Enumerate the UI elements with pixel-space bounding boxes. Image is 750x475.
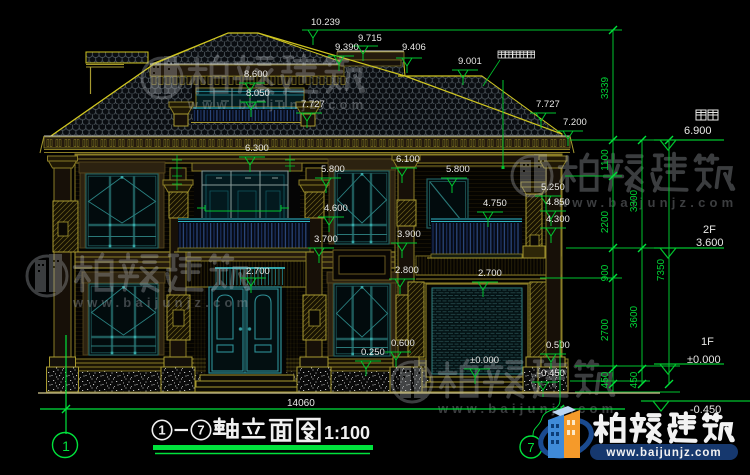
svg-text:www.baijunjz.com: www.baijunjz.com	[605, 447, 721, 459]
svg-text:0.500: 0.500	[546, 340, 570, 351]
svg-text:14060: 14060	[287, 398, 315, 409]
svg-text:2.700: 2.700	[478, 268, 502, 279]
svg-text:www.baijunjz.com: www.baijunjz.com	[557, 195, 737, 210]
svg-text:2.700: 2.700	[246, 266, 270, 277]
svg-text:7: 7	[527, 440, 534, 455]
svg-text:2700: 2700	[600, 318, 611, 341]
svg-text:±0.000: ±0.000	[687, 354, 721, 366]
svg-text:3339: 3339	[600, 76, 611, 99]
svg-text:1: 1	[158, 423, 165, 438]
svg-text:3300: 3300	[629, 189, 640, 212]
svg-text:3.700: 3.700	[314, 234, 338, 245]
svg-text:450: 450	[629, 371, 640, 388]
svg-text:www.baijunjz.com: www.baijunjz.com	[72, 295, 252, 310]
svg-text:4.850: 4.850	[546, 197, 570, 208]
svg-text:7.727: 7.727	[536, 99, 560, 110]
svg-text:8.600: 8.600	[244, 69, 268, 80]
svg-text:1100: 1100	[600, 149, 611, 171]
svg-text:10.239: 10.239	[311, 17, 340, 28]
svg-text:7.727: 7.727	[301, 99, 325, 110]
svg-text:2.800: 2.800	[395, 265, 419, 276]
svg-text:5.800: 5.800	[321, 164, 345, 175]
svg-text:1: 1	[62, 438, 70, 454]
svg-text:450: 450	[600, 371, 611, 388]
svg-text:9.406: 9.406	[402, 42, 426, 53]
svg-text:www.baijunjz.com: www.baijunjz.com	[187, 97, 367, 112]
svg-text:3600: 3600	[629, 305, 640, 328]
svg-text:-0.450: -0.450	[538, 368, 565, 379]
svg-text:±0.000: ±0.000	[470, 355, 499, 366]
svg-text:3.900: 3.900	[397, 229, 421, 240]
svg-text:7.200: 7.200	[563, 117, 587, 128]
svg-text:2200: 2200	[600, 210, 611, 233]
svg-text:0.250: 0.250	[361, 347, 385, 358]
svg-text:6.900: 6.900	[684, 125, 712, 137]
svg-text:5.800: 5.800	[446, 164, 470, 175]
svg-text:9.390: 9.390	[335, 42, 359, 53]
svg-text:1F: 1F	[701, 336, 714, 348]
svg-text:7350: 7350	[656, 258, 667, 281]
svg-text:8.050: 8.050	[246, 88, 270, 99]
svg-text:9.001: 9.001	[458, 56, 482, 67]
svg-text:4.750: 4.750	[483, 198, 507, 209]
svg-text:6.300: 6.300	[245, 143, 269, 154]
svg-text:3.600: 3.600	[696, 237, 724, 249]
svg-text:4.300: 4.300	[546, 214, 570, 225]
svg-text:1:100: 1:100	[324, 423, 370, 443]
svg-text:4.600: 4.600	[324, 203, 348, 214]
svg-text:900: 900	[600, 264, 611, 281]
svg-text:2F: 2F	[703, 224, 716, 236]
svg-text:9.715: 9.715	[358, 33, 382, 44]
svg-text:5.250: 5.250	[541, 182, 565, 193]
svg-text:7: 7	[197, 423, 204, 438]
svg-text:0.600: 0.600	[391, 338, 415, 349]
svg-text:6.100: 6.100	[396, 154, 420, 165]
